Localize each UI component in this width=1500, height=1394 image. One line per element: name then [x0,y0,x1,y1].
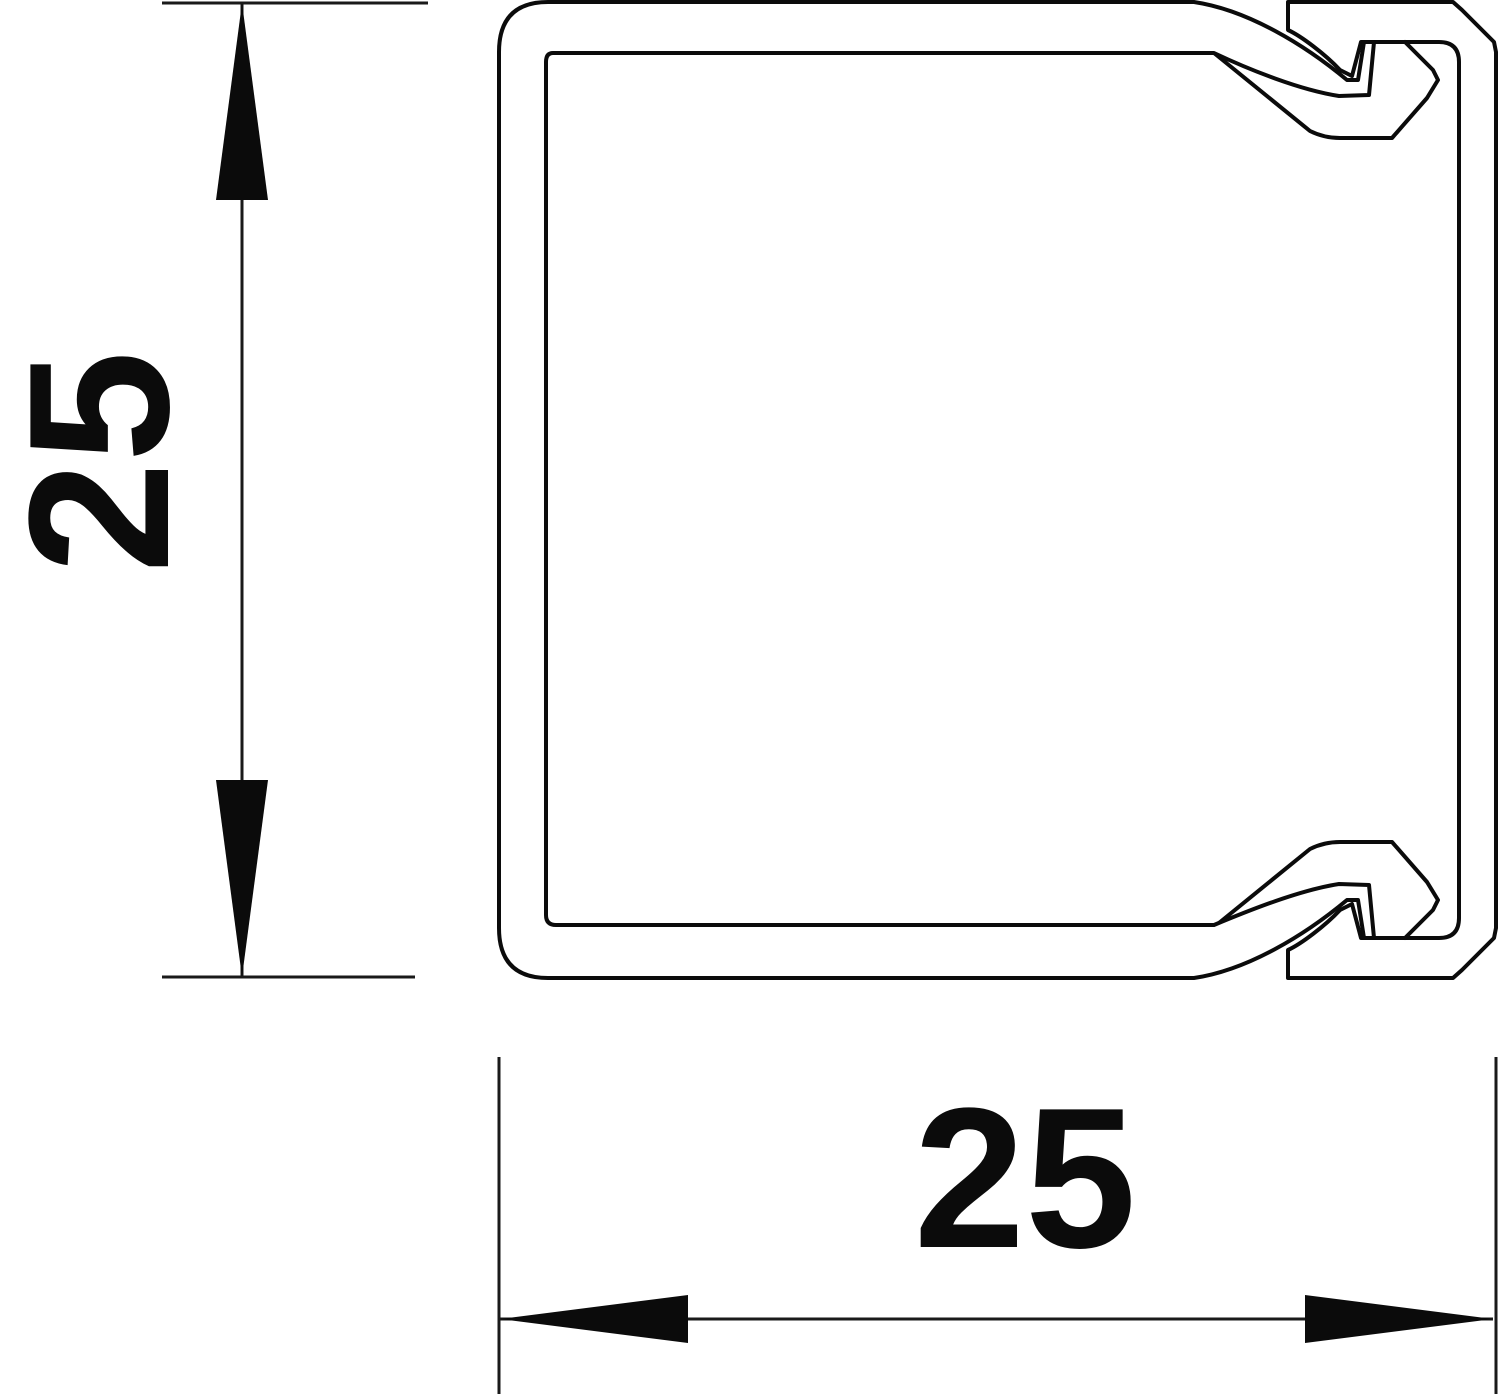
trunking-base-profile-outline [499,2,1374,978]
drawing-page: 25 25 [0,0,1500,1394]
height-dimension: 25 [0,3,428,977]
width-dimension-label: 25 [914,1067,1136,1290]
height-arrow-down-icon [216,780,268,977]
technical-drawing-canvas: 25 25 [0,0,1500,1394]
height-arrow-up-icon [216,3,268,200]
width-arrow-left-icon [500,1295,688,1343]
trunking-cover-profile-outline [1288,2,1496,978]
width-arrow-right-icon [1305,1295,1493,1343]
width-dimension: 25 [499,1057,1496,1394]
height-dimension-label: 25 [0,351,211,573]
trunking-profile [499,2,1496,978]
